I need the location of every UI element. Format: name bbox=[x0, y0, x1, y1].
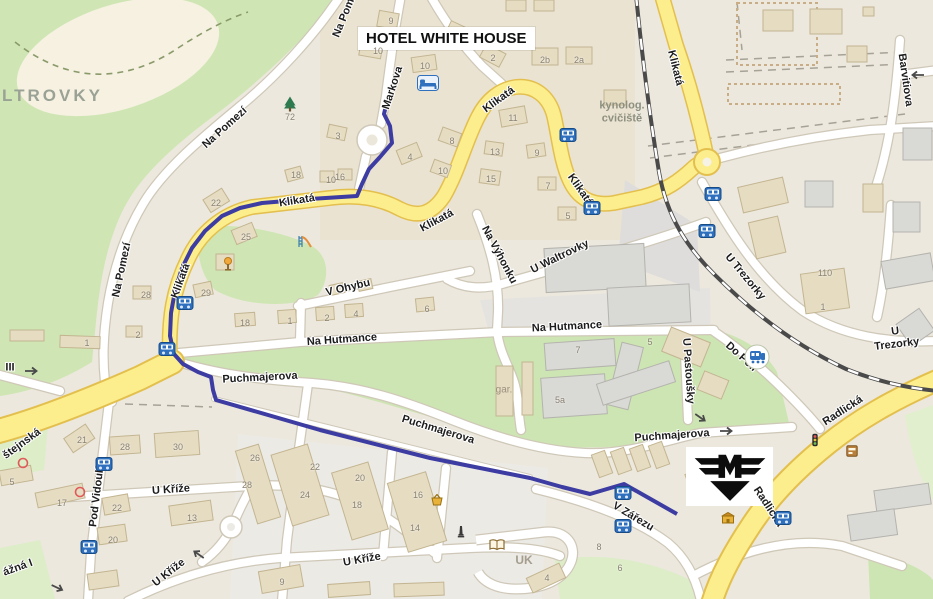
bus-icon bbox=[96, 457, 113, 471]
house-number: 20 bbox=[355, 473, 365, 483]
bus-icon bbox=[699, 224, 716, 238]
arrow-icon bbox=[909, 70, 925, 80]
house-number: 10 bbox=[438, 166, 448, 176]
house-number: 11 bbox=[508, 113, 517, 123]
basemap-svg bbox=[0, 0, 933, 599]
street-label: kynolog. cvičiště bbox=[599, 99, 644, 124]
house-number: 29 bbox=[201, 288, 211, 298]
house-number: 1 bbox=[287, 316, 292, 326]
house-number: 10 bbox=[420, 61, 430, 71]
house-number: 26 bbox=[250, 453, 260, 463]
house-number: 2 bbox=[135, 330, 140, 340]
arrow-icon bbox=[719, 426, 735, 436]
shop-icon bbox=[722, 512, 735, 524]
hotel-label-text: HOTEL WHITE HOUSE bbox=[366, 30, 527, 47]
bus-icon bbox=[560, 128, 577, 142]
tree-icon bbox=[284, 97, 297, 112]
house-number: 16 bbox=[335, 172, 345, 182]
red-ring-icon bbox=[17, 457, 29, 469]
house-number: 25 bbox=[241, 232, 251, 242]
basket-icon bbox=[430, 494, 444, 506]
lamp-icon bbox=[222, 257, 234, 271]
train-station-icon bbox=[744, 344, 770, 370]
house-number: 22 bbox=[112, 503, 122, 513]
house-number: 22 bbox=[211, 198, 221, 208]
house-number: 2a bbox=[574, 55, 584, 65]
bus-icon bbox=[177, 296, 194, 310]
arrow-icon bbox=[24, 366, 40, 376]
house-number: 5 bbox=[565, 211, 570, 221]
house-number: 9 bbox=[388, 16, 393, 26]
house-number: 24 bbox=[300, 490, 310, 500]
bus-icon bbox=[81, 540, 98, 554]
house-number: 4 bbox=[407, 152, 412, 162]
house-number: 18 bbox=[352, 500, 362, 510]
house-number: 7 bbox=[575, 345, 580, 355]
house-number: 15 bbox=[486, 174, 496, 184]
house-number: 18 bbox=[240, 318, 250, 328]
house-number: 6 bbox=[617, 563, 622, 573]
house-number: 9 bbox=[534, 148, 539, 158]
house-number: 28 bbox=[242, 480, 252, 490]
house-number: 30 bbox=[173, 442, 183, 452]
house-number: 7 bbox=[545, 181, 550, 191]
bus-icon bbox=[584, 201, 601, 215]
district-label: LTROVKY bbox=[2, 86, 103, 106]
house-number: 5a bbox=[555, 395, 565, 405]
house-number: 18 bbox=[291, 170, 301, 180]
house-number: 1 bbox=[84, 338, 89, 348]
house-number: 110 bbox=[818, 268, 832, 278]
house-number: 9 bbox=[279, 577, 284, 587]
house-number: 4 bbox=[353, 309, 358, 319]
house-number: 8 bbox=[596, 542, 601, 552]
house-number: 20 bbox=[108, 535, 118, 545]
house-number: 17 bbox=[57, 498, 67, 508]
house-number: 16 bbox=[413, 490, 423, 500]
bus-icon bbox=[615, 519, 632, 533]
house-number: 21 bbox=[77, 435, 87, 445]
bus-icon bbox=[775, 511, 792, 525]
house-number: 5 bbox=[647, 337, 652, 347]
atm-icon bbox=[846, 445, 858, 457]
house-number: 5 bbox=[9, 477, 14, 487]
house-number: 14 bbox=[410, 523, 420, 533]
hotel-label: HOTEL WHITE HOUSE bbox=[358, 27, 535, 50]
house-number: 13 bbox=[187, 513, 197, 523]
street-label: U Kříže bbox=[152, 482, 191, 497]
map-canvas: HOTEL WHITE HOUSE LTROVKY Na PomNa Pomez… bbox=[0, 0, 933, 599]
house-number: 1 bbox=[820, 302, 825, 312]
street-label: III bbox=[5, 362, 14, 375]
house-number: 6 bbox=[424, 304, 429, 314]
house-number: 4 bbox=[544, 573, 549, 583]
bus-icon bbox=[159, 342, 176, 356]
house-number: 2b bbox=[540, 55, 550, 65]
monument-icon bbox=[457, 526, 465, 538]
house-number: 28 bbox=[141, 290, 151, 300]
house-number: 10 bbox=[373, 46, 383, 56]
street-label: UK bbox=[515, 554, 532, 568]
house-number: 2 bbox=[324, 313, 329, 323]
house-number: 8 bbox=[449, 136, 454, 146]
red-ring-icon bbox=[74, 486, 86, 498]
playground-icon bbox=[297, 235, 313, 249]
book-icon bbox=[489, 539, 505, 551]
bus-icon bbox=[615, 486, 632, 500]
house-number: 22 bbox=[310, 462, 320, 472]
traffic-light-icon bbox=[812, 433, 819, 447]
house-number: 72 bbox=[285, 112, 295, 122]
house-number: 13 bbox=[490, 147, 500, 157]
bus-icon bbox=[705, 187, 722, 201]
house-number: 2 bbox=[490, 53, 495, 63]
house-number: 3 bbox=[335, 131, 340, 141]
bed-icon bbox=[417, 75, 439, 91]
house-number: 28 bbox=[120, 442, 130, 452]
street-label: gar. bbox=[496, 384, 513, 396]
